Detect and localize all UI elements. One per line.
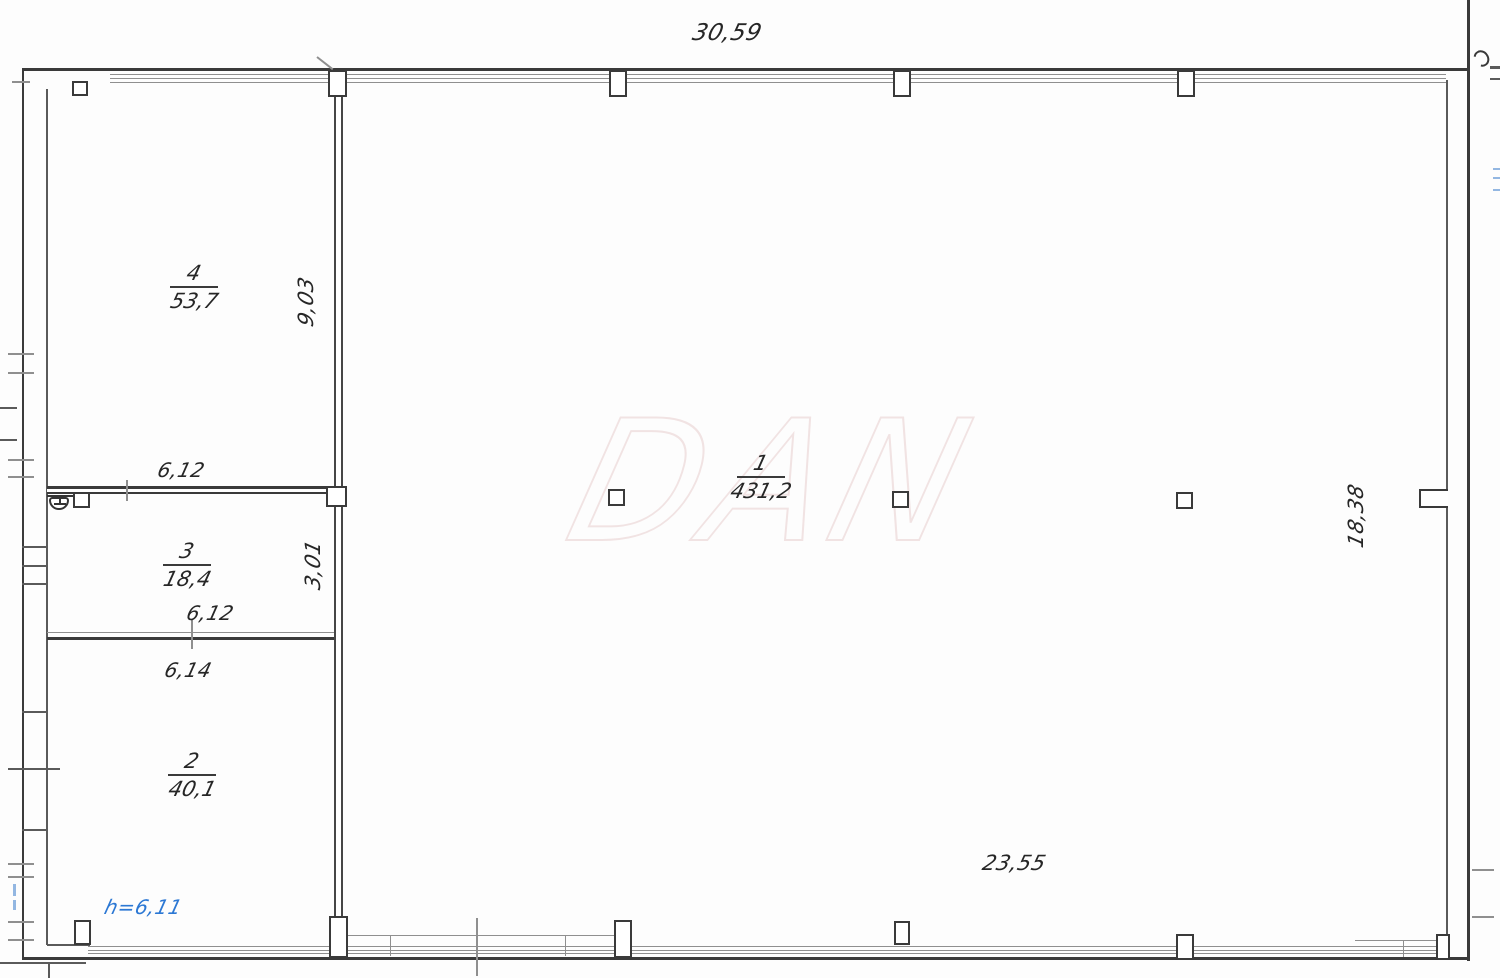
blue-edge-mark (13, 900, 16, 910)
blue-edge-mark (1493, 177, 1500, 179)
bottom-window-band-line (88, 946, 1446, 947)
room-1-area: 431,2 (716, 479, 806, 503)
dimension-overall-width: 30,59 (693, 20, 761, 46)
left-window-mullion (22, 711, 47, 713)
room-2-label: 2 40,1 (150, 750, 234, 801)
room-1-label: 1 431,2 (716, 452, 806, 503)
blue-edge-mark (13, 884, 16, 896)
left-window-mullion (22, 583, 47, 585)
left-window-mullion (8, 768, 60, 770)
interior-column (326, 486, 347, 507)
left-window-mullion (22, 829, 47, 831)
pilaster (1176, 934, 1194, 960)
exterior-wall-right-inner (1446, 80, 1448, 958)
wall-tick (8, 459, 34, 461)
room-2-area: 40,1 (150, 777, 234, 801)
pilaster (329, 916, 348, 958)
room-4-number: 4 (170, 262, 217, 288)
interior-column (892, 491, 909, 508)
room-4-label: 4 53,7 (153, 262, 235, 313)
pilaster (328, 70, 347, 97)
frame-stub (0, 439, 17, 441)
exterior-wall-left-inner (46, 89, 48, 945)
room-3-area: 18,4 (146, 567, 228, 591)
blue-edge-mark (1493, 168, 1500, 170)
wall-tick (1472, 869, 1494, 871)
exterior-wall-left (22, 68, 24, 958)
interior-column (608, 489, 625, 506)
room-1-number: 1 (737, 452, 784, 478)
bottom-window-band-line (88, 953, 1446, 954)
partition-wall-vertical-lower (334, 507, 343, 916)
wall-tick (8, 876, 34, 878)
dimension-tick (126, 480, 128, 501)
left-window-mullion (22, 546, 47, 548)
bottom-window-divider (390, 935, 391, 956)
room-2-number: 2 (168, 750, 215, 776)
pilaster (894, 921, 910, 945)
bottom-window-divider (1403, 940, 1404, 957)
pilaster (1177, 70, 1195, 97)
dimension-hall-height: 18,38 (1344, 480, 1368, 552)
top-window-band-line (110, 82, 1446, 83)
wall-tick (8, 921, 34, 923)
wall-tick (8, 353, 34, 355)
bottom-window-sill (347, 935, 614, 936)
right-wall-pilaster-notch (1419, 489, 1448, 508)
dimension-hall-bottom-width: 23,55 (983, 851, 1046, 875)
bottom-window-sill (1355, 940, 1437, 941)
pilaster (609, 70, 627, 97)
room-4-area: 53,7 (153, 289, 235, 313)
interior-column (1176, 492, 1193, 509)
pilaster (1436, 934, 1450, 960)
pilaster (72, 81, 88, 96)
wall-tick (1490, 78, 1500, 80)
top-window-band-line (110, 78, 1446, 79)
sink-icon (48, 495, 74, 513)
top-window-band-line (110, 74, 1446, 75)
pilaster (614, 920, 632, 958)
dimension-room4-width: 6,12 (158, 458, 205, 482)
room-3-number: 3 (163, 540, 210, 566)
dimension-room2-width: 6,14 (165, 658, 212, 682)
wall-tick (8, 476, 34, 478)
exterior-wall-bottom (22, 957, 1470, 960)
frame-stub (0, 407, 17, 409)
exterior-wall-right (1467, 0, 1470, 961)
bottom-window-band-line (88, 950, 1446, 951)
wall-tick (8, 939, 34, 941)
ceiling-height-note: h=6,11 (105, 895, 182, 919)
room-3-label: 3 18,4 (146, 540, 228, 591)
blue-edge-mark (1493, 189, 1500, 191)
dimension-room3-width: 6,12 (187, 601, 234, 625)
exterior-wall-top (22, 68, 1470, 71)
pilaster (74, 920, 91, 945)
pilaster (893, 70, 911, 97)
wall-tick (1490, 66, 1500, 69)
bottom-window-divider (565, 935, 566, 956)
frame-stub (48, 962, 50, 978)
dimension-room4-height: 9,03 (294, 272, 318, 332)
vent-duct-icon (73, 492, 90, 508)
wall-tick (12, 81, 30, 83)
dimension-room3-height: 3,01 (301, 537, 325, 593)
floor-plan-canvas: DAN (0, 0, 1500, 978)
wall-tick (8, 863, 34, 865)
wall-tick (8, 372, 34, 374)
frame-stub (0, 962, 86, 964)
dimension-tick (476, 918, 478, 976)
partition-wall-vertical-upper (334, 96, 343, 487)
left-window-mullion (22, 565, 47, 567)
wall-tick (1472, 916, 1494, 918)
